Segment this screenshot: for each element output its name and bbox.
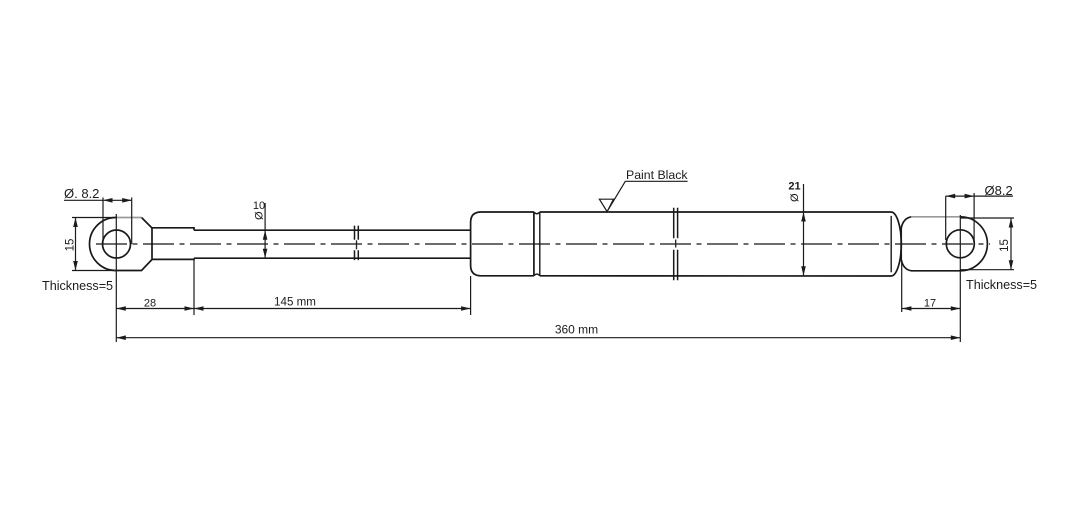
svg-text:Ø: Ø (252, 211, 264, 220)
svg-text:15: 15 (65, 239, 77, 252)
svg-text:28: 28 (144, 298, 156, 310)
svg-text:15: 15 (999, 239, 1011, 252)
svg-text:21: 21 (788, 181, 800, 193)
svg-text:145 mm: 145 mm (274, 296, 316, 309)
svg-text:10: 10 (253, 200, 265, 212)
svg-text:17: 17 (924, 298, 936, 310)
svg-text:Paint Black: Paint Black (626, 168, 688, 182)
svg-text:Thickness=5: Thickness=5 (966, 278, 1037, 292)
svg-text:Ø. 8.2: Ø. 8.2 (64, 186, 99, 201)
svg-text:360 mm: 360 mm (555, 323, 598, 337)
svg-text:Thickness=5: Thickness=5 (42, 279, 113, 293)
svg-text:Ø: Ø (788, 193, 800, 202)
svg-text:Ø8.2: Ø8.2 (985, 183, 1013, 198)
